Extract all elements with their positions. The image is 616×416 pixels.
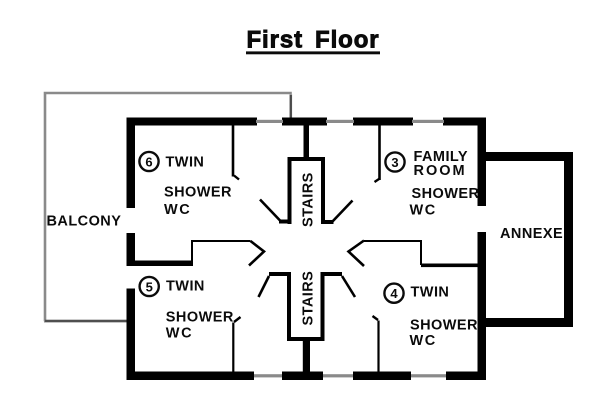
svg-text:WC: WC xyxy=(410,333,437,349)
svg-text:TWIN: TWIN xyxy=(166,155,205,171)
svg-text:SHOWER: SHOWER xyxy=(410,317,478,333)
svg-text:6: 6 xyxy=(145,154,152,169)
svg-text:ANNEXE: ANNEXE xyxy=(500,226,563,242)
svg-text:First Floor: First Floor xyxy=(246,27,379,54)
svg-text:TWIN: TWIN xyxy=(411,285,450,301)
svg-text:ROOM: ROOM xyxy=(414,163,467,179)
svg-text:4: 4 xyxy=(390,286,398,301)
svg-text:BALCONY: BALCONY xyxy=(47,214,122,230)
svg-text:WC: WC xyxy=(164,202,191,218)
svg-text:SHOWER: SHOWER xyxy=(412,186,480,202)
svg-text:SHOWER: SHOWER xyxy=(164,185,232,201)
svg-text:STAIRS: STAIRS xyxy=(300,271,316,326)
svg-text:5: 5 xyxy=(146,279,153,294)
svg-text:WC: WC xyxy=(166,325,193,341)
svg-text:TWIN: TWIN xyxy=(166,279,205,295)
svg-text:STAIRS: STAIRS xyxy=(300,172,316,227)
svg-text:SHOWER: SHOWER xyxy=(166,310,234,326)
svg-text:WC: WC xyxy=(410,203,437,219)
svg-text:3: 3 xyxy=(391,155,398,170)
